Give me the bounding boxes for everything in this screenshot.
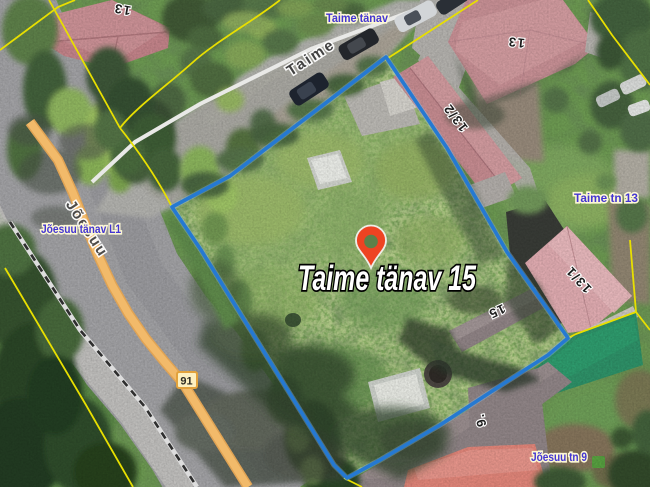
svg-text:13: 13: [112, 1, 132, 19]
svg-text:91: 91: [180, 376, 192, 388]
svg-text:Taime tn 13: Taime tn 13: [574, 191, 638, 205]
svg-text:Jõesuu tn 9: Jõesuu tn 9: [531, 450, 587, 464]
svg-text:Jõesuu tänav L1: Jõesuu tänav L1: [41, 222, 121, 236]
svg-text:Taime tänav 15: Taime tänav 15: [298, 259, 476, 298]
svg-text:Taime tänav: Taime tänav: [326, 11, 388, 25]
svg-text:13: 13: [507, 34, 526, 51]
